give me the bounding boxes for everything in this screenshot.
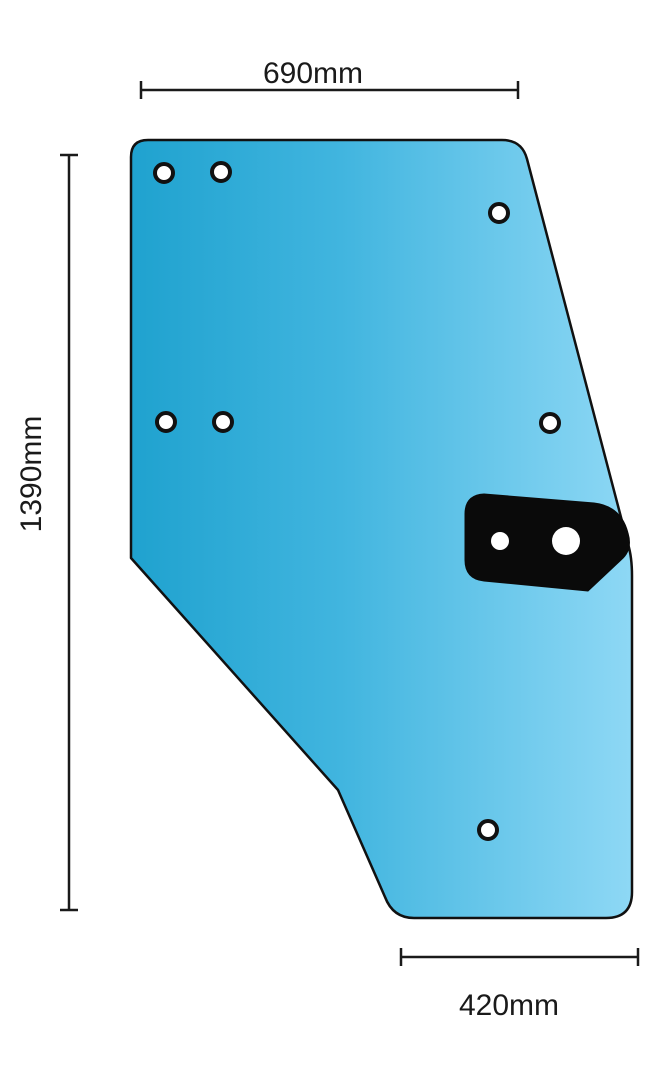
mounting-hole (541, 414, 559, 432)
left-dimension-label: 1390mm (15, 416, 48, 533)
left-dimension: 1390mm (15, 155, 78, 910)
bracket-hole (491, 532, 509, 550)
bottom-dimension-label: 420mm (459, 989, 559, 1022)
bracket-hole (552, 527, 580, 555)
top-dimension-label: 690mm (263, 57, 363, 90)
mounting-hole (214, 413, 232, 431)
diagram-canvas: 690mm 1390mm 420mm (0, 0, 665, 1076)
glass-panel-diagram: 690mm 1390mm 420mm (0, 0, 665, 1076)
mounting-hole (212, 163, 230, 181)
mounting-hole (157, 413, 175, 431)
bottom-dimension: 420mm (401, 948, 638, 1022)
mounting-hole (155, 164, 173, 182)
mounting-hole (490, 204, 508, 222)
top-dimension: 690mm (141, 57, 518, 99)
mounting-hole (479, 821, 497, 839)
